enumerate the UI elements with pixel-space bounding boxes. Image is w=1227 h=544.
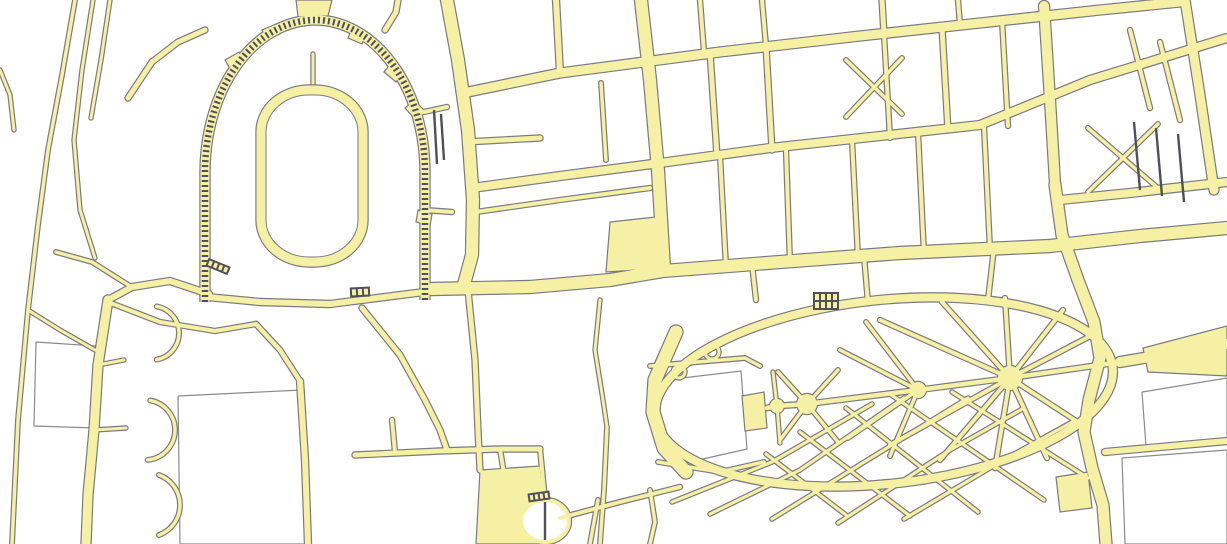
stadium-field [261,90,363,262]
building-mark [813,292,839,310]
street-map[interactable] [0,0,1227,544]
building-mark [350,286,370,297]
map-viewport[interactable] [0,0,1227,544]
